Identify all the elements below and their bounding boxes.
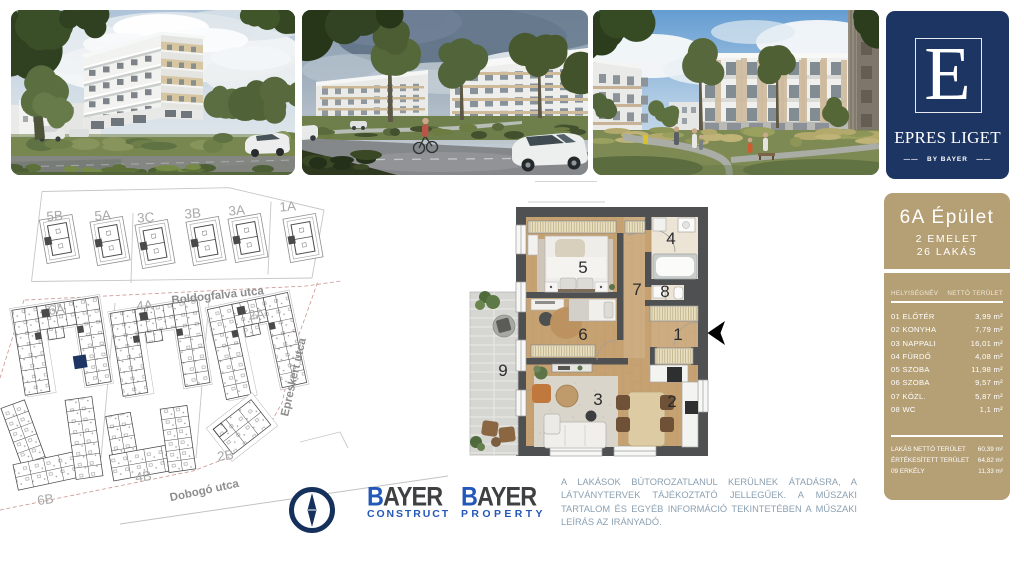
svg-text:2B: 2B: [216, 447, 234, 464]
svg-text:3: 3: [593, 390, 602, 409]
svg-text:4: 4: [666, 229, 675, 248]
svg-text:7: 7: [632, 280, 641, 299]
svg-text:8: 8: [660, 282, 669, 301]
svg-text:5A: 5A: [94, 207, 112, 223]
svg-text:6A: 6A: [48, 301, 66, 318]
svg-text:1A: 1A: [279, 198, 297, 214]
svg-text:6: 6: [578, 325, 587, 344]
svg-text:4A: 4A: [136, 297, 154, 314]
svg-text:5B: 5B: [46, 208, 64, 224]
svg-text:3B: 3B: [184, 205, 202, 221]
svg-text:1: 1: [673, 325, 682, 344]
svg-text:9: 9: [498, 361, 507, 380]
svg-text:3C: 3C: [137, 209, 156, 225]
svg-text:Dobogó utca: Dobogó utca: [169, 478, 241, 504]
svg-text:2A: 2A: [248, 306, 266, 323]
svg-text:6B: 6B: [36, 491, 54, 508]
svg-text:5: 5: [578, 258, 587, 277]
svg-text:2: 2: [667, 392, 676, 411]
svg-text:3A: 3A: [228, 202, 246, 218]
svg-text:4B: 4B: [134, 468, 152, 485]
